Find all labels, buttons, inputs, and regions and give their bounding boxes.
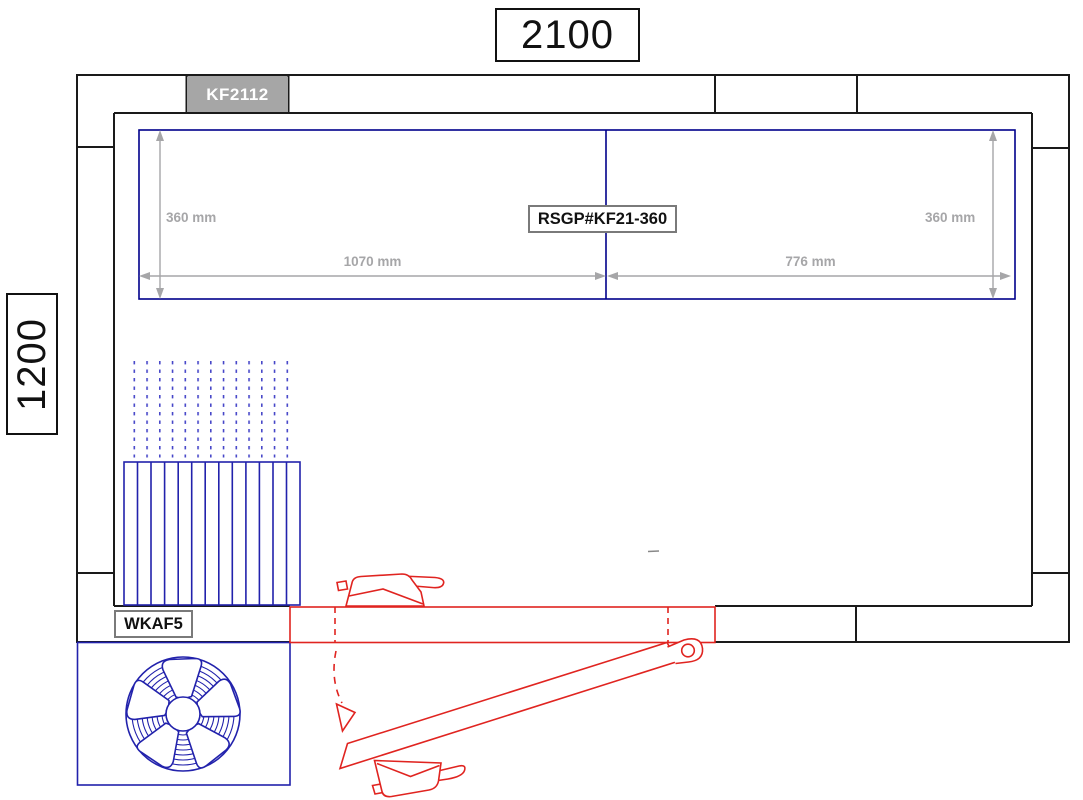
arrow-right-icon	[595, 272, 606, 280]
dim-right-height-text: 360 mm	[925, 210, 975, 225]
rear-panel-tag[interactable]: RSGP#KF21-360	[528, 205, 677, 233]
overall-width-value: 2100	[521, 13, 614, 58]
dim-right-span-text: 776 mm	[768, 254, 853, 269]
door-handle-closed-icon	[337, 574, 444, 606]
airflow-dots	[133, 361, 290, 458]
evaporator-fins-icon[interactable]	[124, 462, 300, 605]
overall-width-label: 2100	[495, 8, 640, 62]
stray-mark	[648, 551, 659, 552]
hinge-pin-icon	[682, 644, 695, 657]
overall-height-label: 1200	[6, 293, 58, 435]
dim-left-height-text: 360 mm	[166, 210, 216, 225]
fan-icon[interactable]	[124, 657, 242, 771]
ceiling-unit-label: KF2112	[206, 85, 269, 105]
arrow-up-icon	[156, 130, 164, 141]
dim-left-span-text: 1070 mm	[330, 254, 415, 269]
door-swing-arc	[334, 651, 342, 703]
door-handle-open-icon	[373, 761, 465, 797]
arrow-down-icon	[989, 288, 997, 299]
rear-panel-label: RSGP#KF21-360	[538, 210, 667, 229]
arrow-left-icon	[607, 272, 618, 280]
ceiling-unit-badge[interactable]: KF2112	[187, 77, 288, 112]
evaporator-label: WKAF5	[124, 615, 183, 634]
door-open[interactable]	[340, 643, 678, 769]
fan-hub	[166, 697, 200, 731]
evaporator-tag[interactable]: WKAF5	[114, 610, 193, 638]
arrow-down-icon	[156, 288, 164, 299]
door-swing-arrowhead-icon	[337, 704, 356, 731]
arrow-left-icon	[139, 272, 150, 280]
plan-drawing	[0, 0, 1083, 800]
arrow-up-icon	[989, 130, 997, 141]
door-closed[interactable]	[290, 607, 715, 643]
arrow-right-icon	[1000, 272, 1011, 280]
door-assembly[interactable]	[290, 574, 715, 797]
technical-drawing-canvas: 2100 1200 KF2112 RSGP#KF21-360 WKAF5 360…	[0, 0, 1083, 800]
overall-height-value: 1200	[10, 318, 55, 411]
